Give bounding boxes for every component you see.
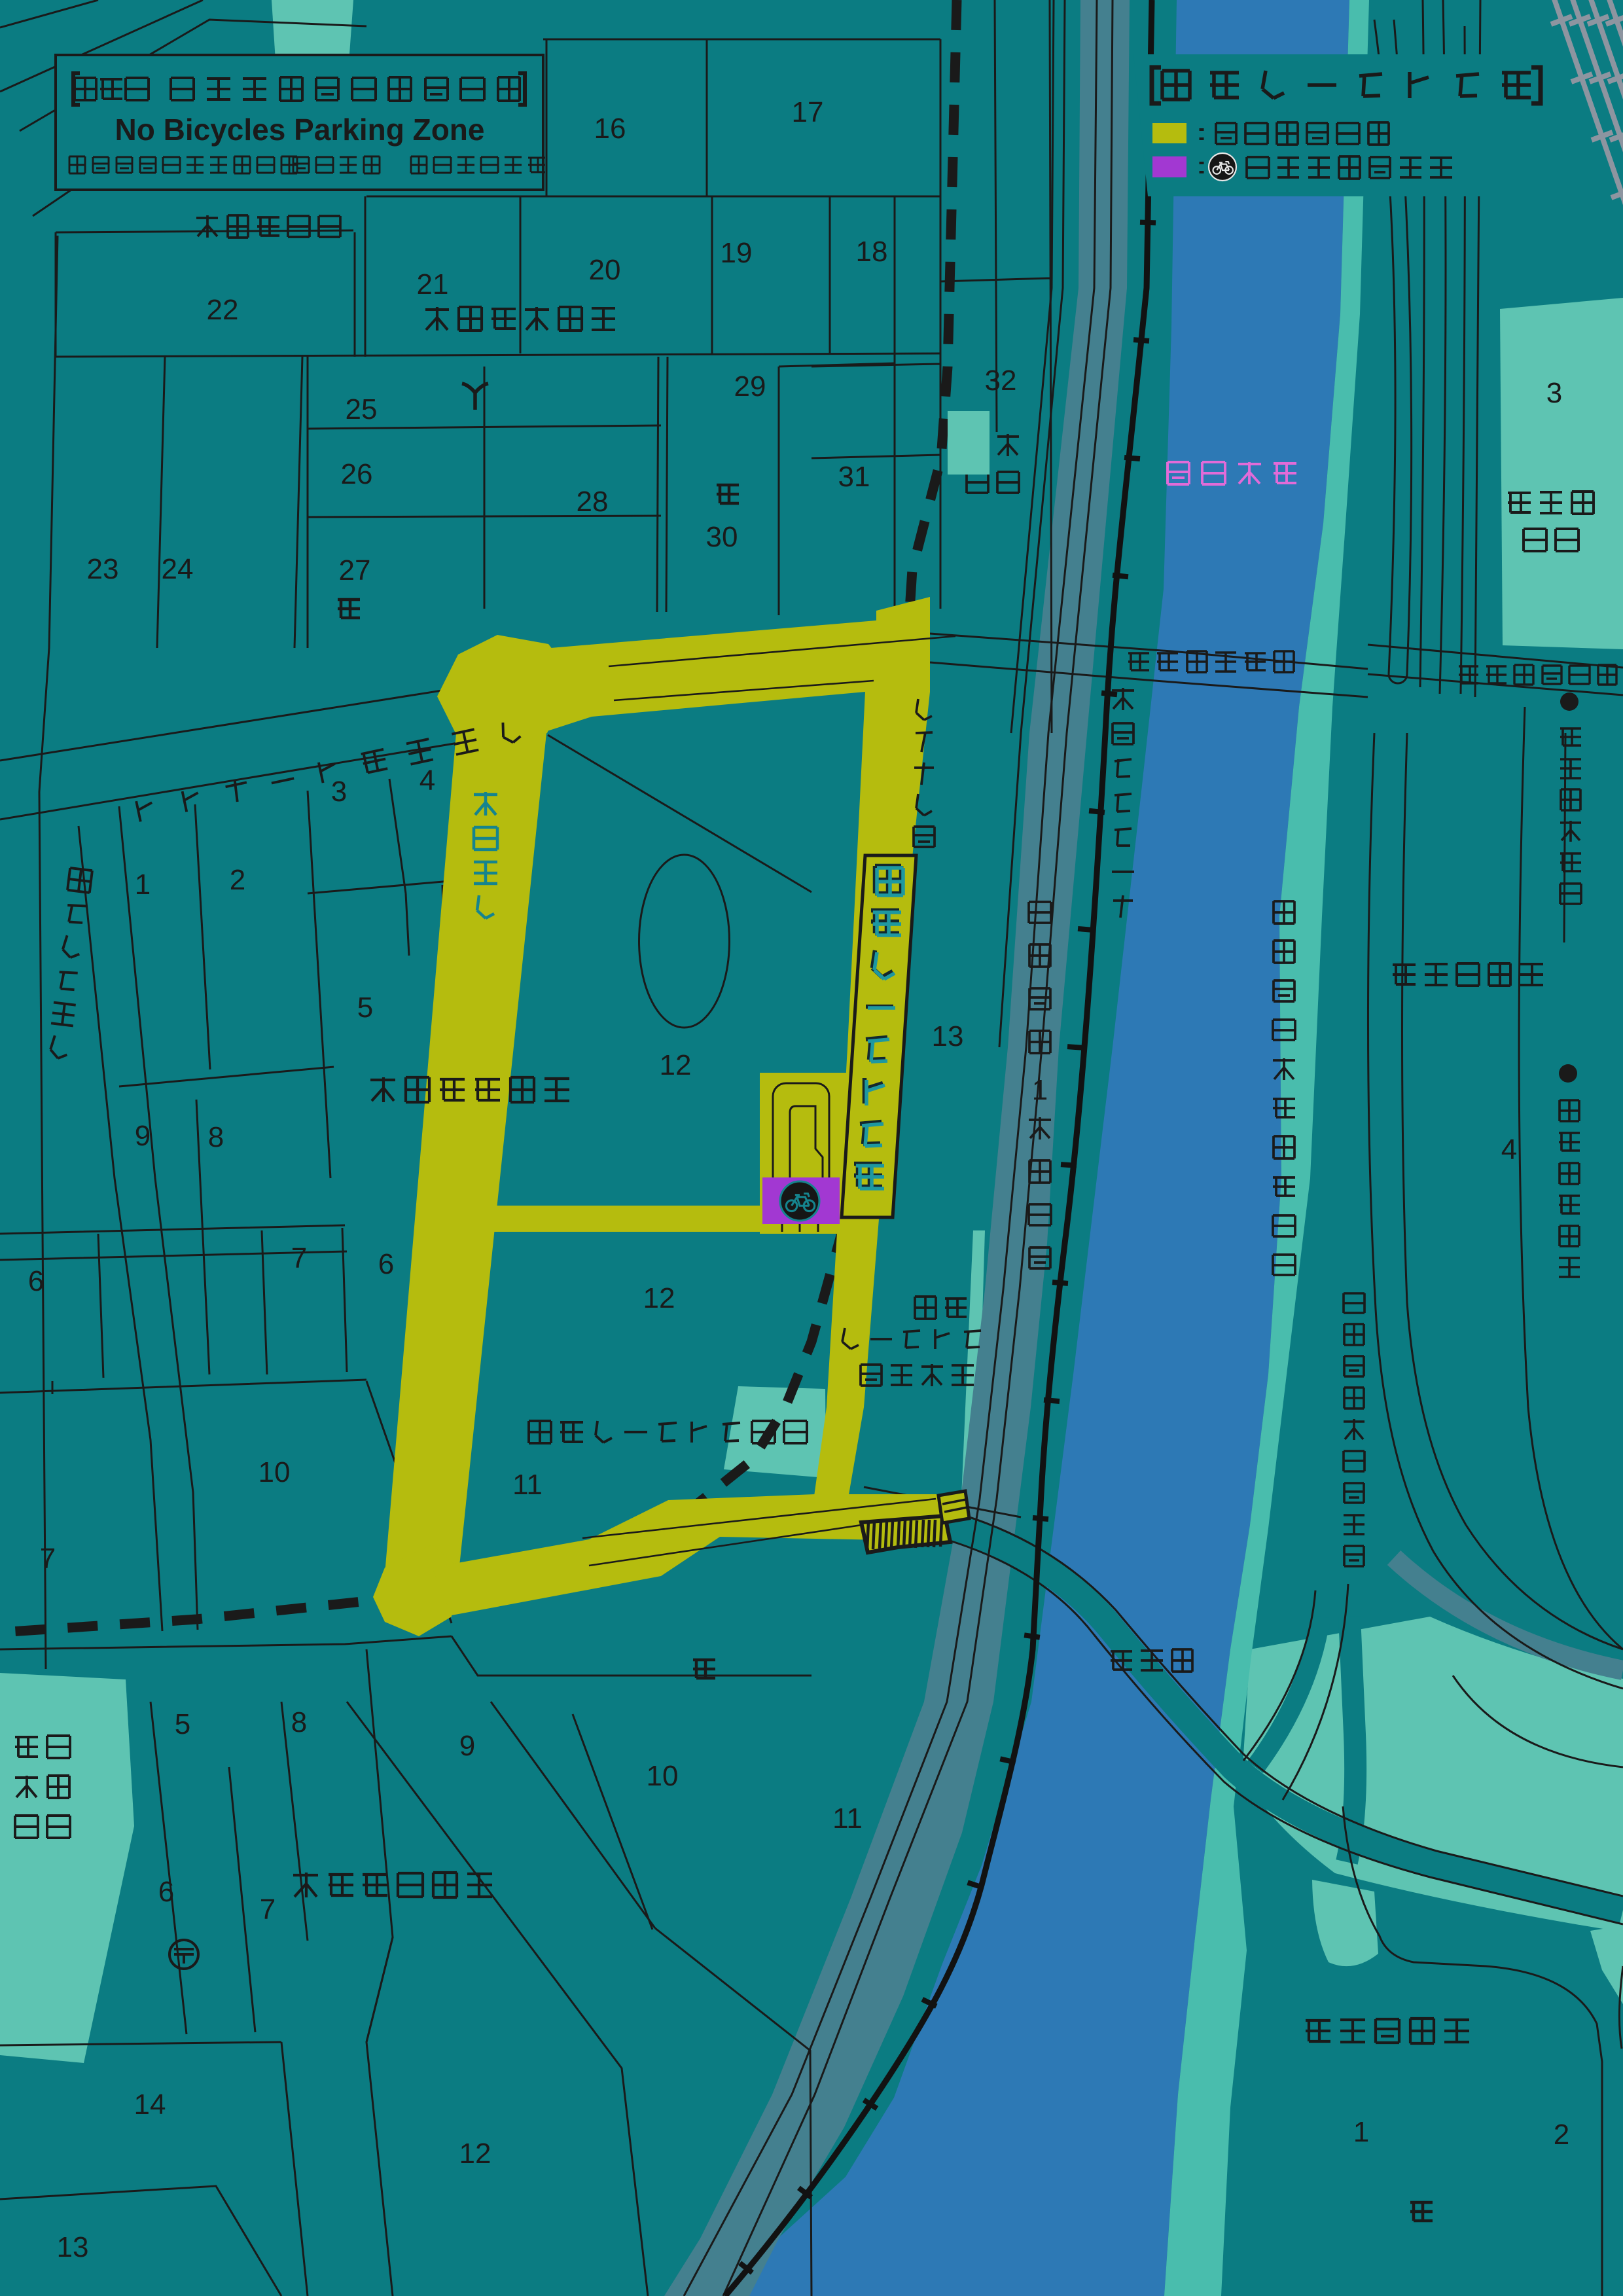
svg-text:23: 23 bbox=[87, 553, 119, 585]
svg-text:8: 8 bbox=[208, 1121, 224, 1153]
svg-text:8: 8 bbox=[291, 1706, 307, 1738]
svg-text:13: 13 bbox=[932, 1020, 964, 1052]
svg-text:12: 12 bbox=[643, 1282, 675, 1314]
svg-text:6: 6 bbox=[158, 1876, 174, 1908]
svg-text:29: 29 bbox=[734, 370, 766, 403]
svg-text:17: 17 bbox=[792, 96, 824, 128]
svg-text:32: 32 bbox=[985, 365, 1017, 397]
svg-text:9: 9 bbox=[135, 1120, 151, 1152]
svg-text:No Bicycles Parking Zone: No Bicycles Parking Zone bbox=[115, 113, 485, 147]
svg-text:1: 1 bbox=[1353, 2116, 1369, 2148]
svg-text:31: 31 bbox=[838, 461, 870, 493]
svg-text:18: 18 bbox=[856, 236, 888, 268]
svg-text:3: 3 bbox=[1546, 377, 1562, 409]
svg-text:21: 21 bbox=[417, 268, 449, 300]
svg-text:27: 27 bbox=[339, 554, 371, 586]
svg-text:5: 5 bbox=[175, 1708, 190, 1740]
svg-text:20: 20 bbox=[589, 254, 621, 286]
svg-text:3: 3 bbox=[331, 776, 347, 808]
svg-text:10: 10 bbox=[647, 1760, 679, 1792]
svg-text:6: 6 bbox=[28, 1265, 44, 1297]
svg-text:24: 24 bbox=[162, 553, 194, 585]
svg-text:2: 2 bbox=[1554, 2119, 1569, 2151]
svg-text:11: 11 bbox=[512, 1469, 543, 1501]
svg-text:19: 19 bbox=[721, 237, 753, 269]
svg-text:6: 6 bbox=[378, 1248, 394, 1280]
svg-text:1: 1 bbox=[1032, 1074, 1048, 1106]
svg-text:7: 7 bbox=[40, 1543, 56, 1575]
svg-text:13: 13 bbox=[57, 2231, 89, 2263]
svg-text:28: 28 bbox=[577, 486, 609, 518]
svg-text:11: 11 bbox=[832, 1803, 863, 1835]
svg-text:7: 7 bbox=[291, 1242, 307, 1274]
svg-text:9: 9 bbox=[459, 1730, 475, 1762]
svg-text:4: 4 bbox=[419, 764, 435, 797]
svg-text:14: 14 bbox=[134, 2089, 166, 2121]
svg-text:2: 2 bbox=[230, 864, 245, 896]
svg-text:5: 5 bbox=[357, 992, 373, 1024]
svg-text:7: 7 bbox=[260, 1893, 276, 1926]
svg-text:1: 1 bbox=[135, 869, 151, 901]
svg-text:16: 16 bbox=[594, 113, 626, 145]
svg-text:25: 25 bbox=[346, 393, 378, 425]
svg-text:12: 12 bbox=[459, 2138, 491, 2170]
svg-text:26: 26 bbox=[341, 458, 373, 490]
svg-text:30: 30 bbox=[706, 521, 738, 553]
svg-text:10: 10 bbox=[259, 1456, 291, 1488]
svg-text:22: 22 bbox=[207, 294, 239, 326]
svg-text:4: 4 bbox=[1501, 1134, 1517, 1166]
svg-text:12: 12 bbox=[660, 1049, 692, 1081]
